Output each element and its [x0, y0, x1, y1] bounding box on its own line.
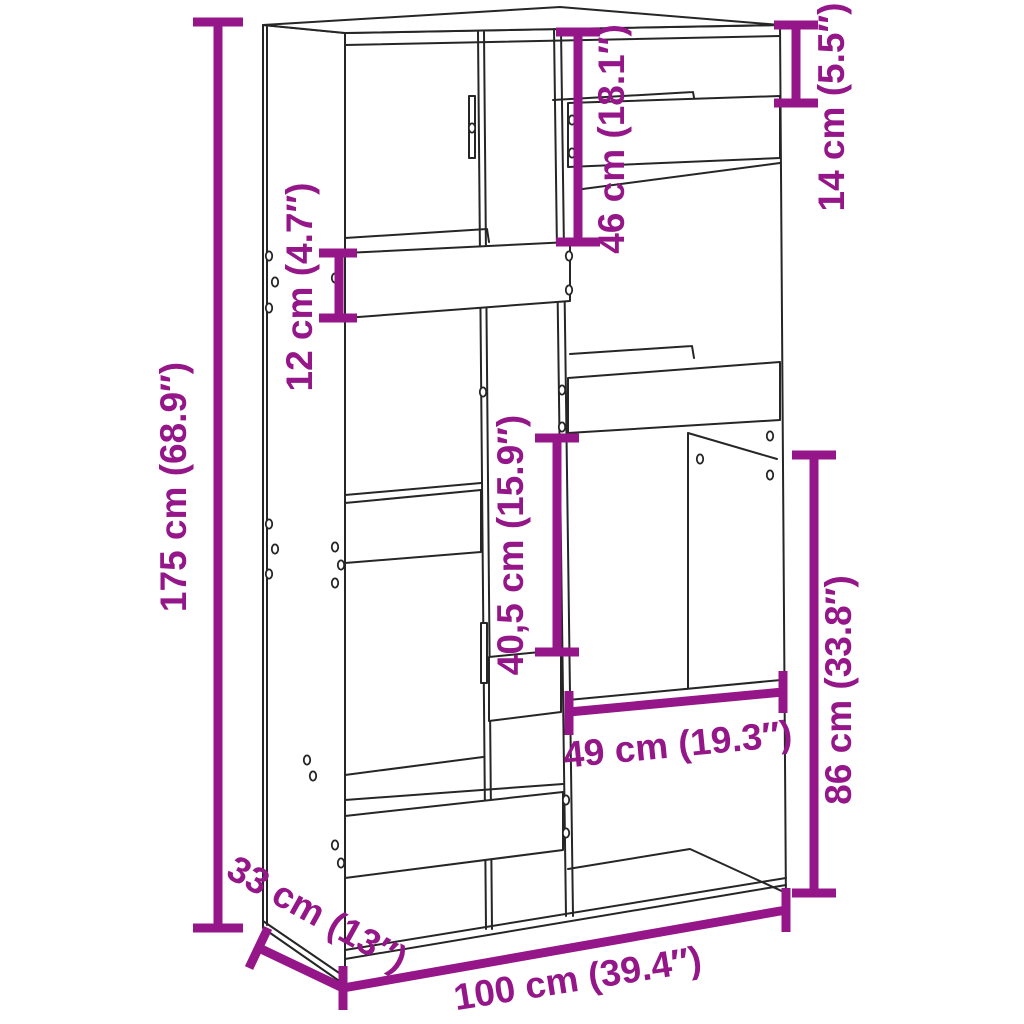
dimension-left-opening-label: 12 cm (4.7″): [279, 183, 320, 392]
back-divider-edge-mid: [481, 623, 487, 683]
dimension-top-right-opening-label: 14 cm (5.5″): [811, 3, 852, 212]
dimension-overall-height-label: 175 cm (68.9″): [153, 362, 194, 612]
dimension-lower-right-section-label: 86 cm (33.8″): [818, 575, 859, 805]
dimension-lower-right-section: 86 cm (33.8″): [792, 455, 859, 893]
dimension-upper-opening-label: 46 cm (18.1″): [591, 24, 632, 254]
dimension-overall-height: 175 cm (68.9″): [153, 22, 243, 928]
diagram-svg: 175 cm (68.9″) 12 cm (4.7″) 46 cm (18.1″…: [0, 0, 1024, 1024]
dimension-top-right-opening: 14 cm (5.5″): [774, 3, 852, 212]
panel-mid-left: [345, 490, 481, 563]
dimension-middle-opening-label: 40,5 cm (15.9″): [490, 415, 531, 675]
product-dimension-diagram: 175 cm (68.9″) 12 cm (4.7″) 46 cm (18.1″…: [0, 0, 1024, 1024]
